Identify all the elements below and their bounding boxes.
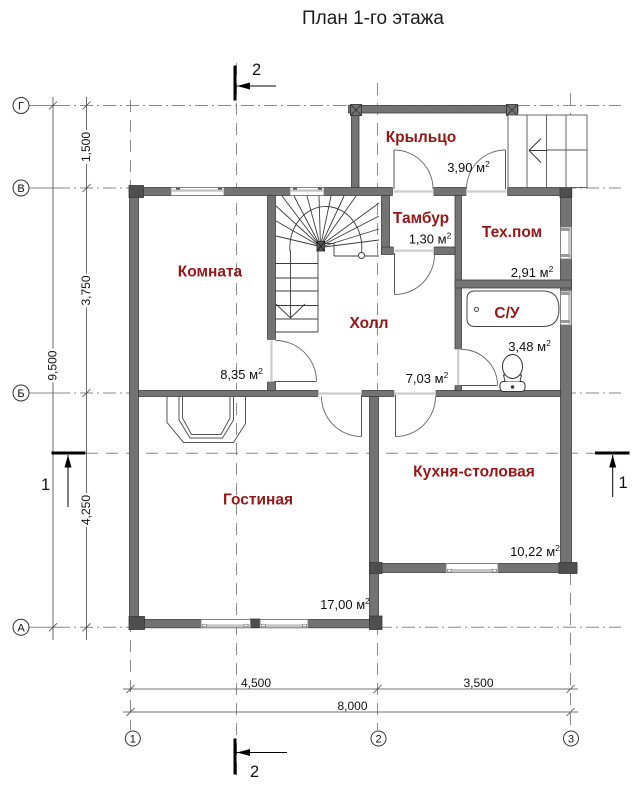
- svg-text:Холл: Холл: [350, 315, 389, 332]
- svg-text:8,000: 8,000: [337, 699, 367, 713]
- svg-text:10,22 м2: 10,22 м2: [510, 543, 560, 559]
- svg-text:Комната: Комната: [178, 264, 243, 281]
- svg-text:Тамбур: Тамбур: [393, 210, 449, 227]
- svg-text:1,500: 1,500: [79, 132, 93, 162]
- svg-text:Крыльцо: Крыльцо: [386, 129, 457, 146]
- svg-text:Гостиная: Гостиная: [223, 492, 293, 509]
- svg-text:План 1-го этажа: План 1-го этажа: [302, 8, 444, 29]
- svg-text:3: 3: [568, 734, 574, 746]
- svg-text:1: 1: [130, 734, 136, 746]
- svg-text:1,30 м2: 1,30 м2: [409, 231, 452, 247]
- svg-text:3,500: 3,500: [463, 676, 493, 690]
- svg-text:4,500: 4,500: [241, 676, 271, 690]
- svg-text:Г: Г: [18, 101, 24, 113]
- svg-text:1: 1: [41, 476, 50, 494]
- svg-text:9,500: 9,500: [46, 350, 60, 380]
- svg-text:2: 2: [250, 763, 259, 781]
- svg-text:3,750: 3,750: [79, 275, 93, 305]
- svg-text:17,00 м2: 17,00 м2: [320, 596, 370, 612]
- svg-text:2,91 м2: 2,91 м2: [511, 264, 554, 280]
- svg-text:С/У: С/У: [494, 305, 520, 322]
- svg-text:Тех.пом: Тех.пом: [482, 224, 542, 241]
- svg-text:3,90 м2: 3,90 м2: [447, 159, 490, 175]
- svg-text:2: 2: [252, 61, 261, 79]
- svg-text:1: 1: [619, 474, 628, 492]
- svg-text:В: В: [17, 183, 24, 195]
- svg-text:3,48 м2: 3,48 м2: [508, 338, 551, 354]
- svg-text:8,35 м2: 8,35 м2: [220, 366, 263, 382]
- svg-text:Б: Б: [17, 388, 24, 400]
- svg-text:4,250: 4,250: [79, 495, 93, 525]
- svg-text:А: А: [17, 622, 25, 634]
- svg-text:2: 2: [375, 734, 381, 746]
- svg-text:7,03 м2: 7,03 м2: [406, 370, 449, 386]
- svg-text:Кухня-столовая: Кухня-столовая: [413, 464, 535, 481]
